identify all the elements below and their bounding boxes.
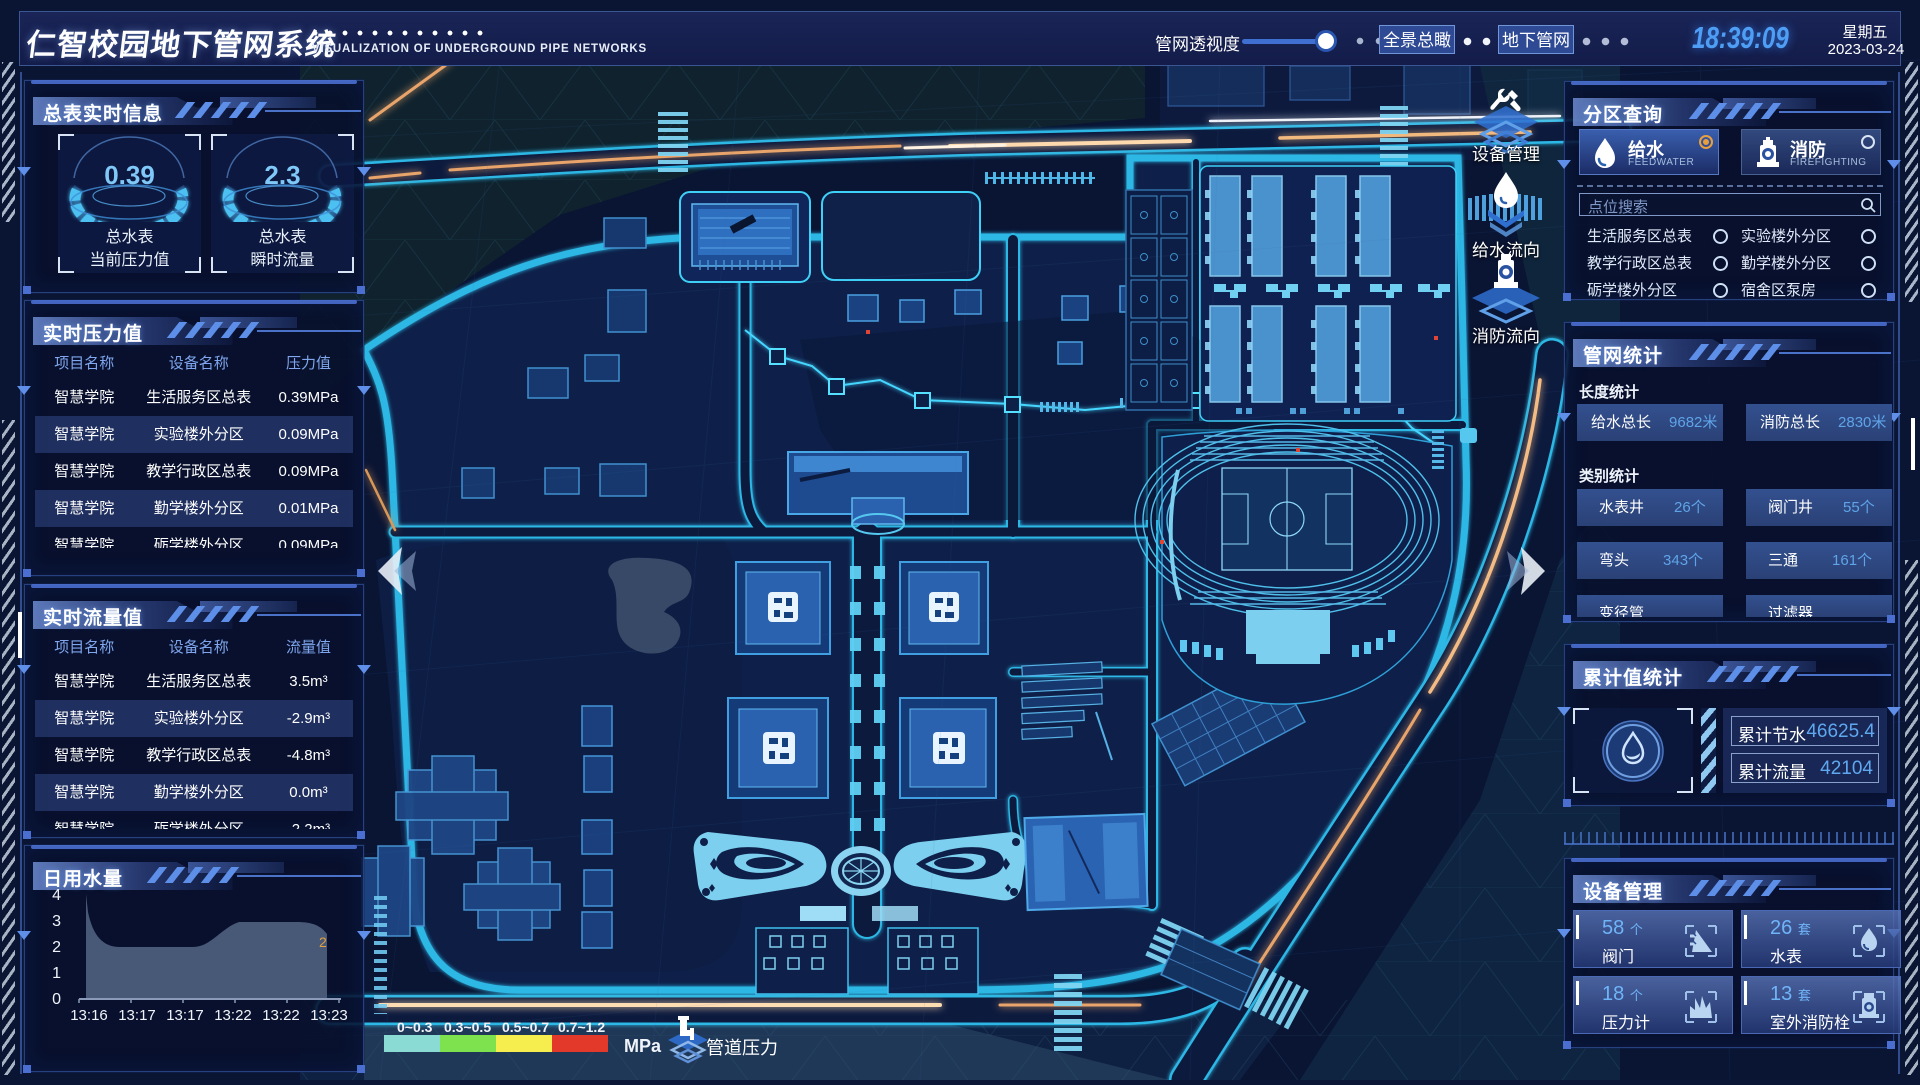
svg-text:13:17: 13:17 [166,1007,204,1024]
svg-text:13:16: 13:16 [70,1007,108,1024]
svg-text:13:23: 13:23 [310,1007,348,1024]
svg-text:1: 1 [52,965,61,982]
svg-text:2: 2 [319,934,327,950]
svg-text:4: 4 [52,887,61,904]
svg-text:0: 0 [52,991,61,1008]
svg-text:3: 3 [52,913,61,930]
svg-text:13:22: 13:22 [262,1007,300,1024]
svg-text:13:17: 13:17 [118,1007,156,1024]
svg-text:2: 2 [52,939,61,956]
svg-text:13:22: 13:22 [214,1007,252,1024]
